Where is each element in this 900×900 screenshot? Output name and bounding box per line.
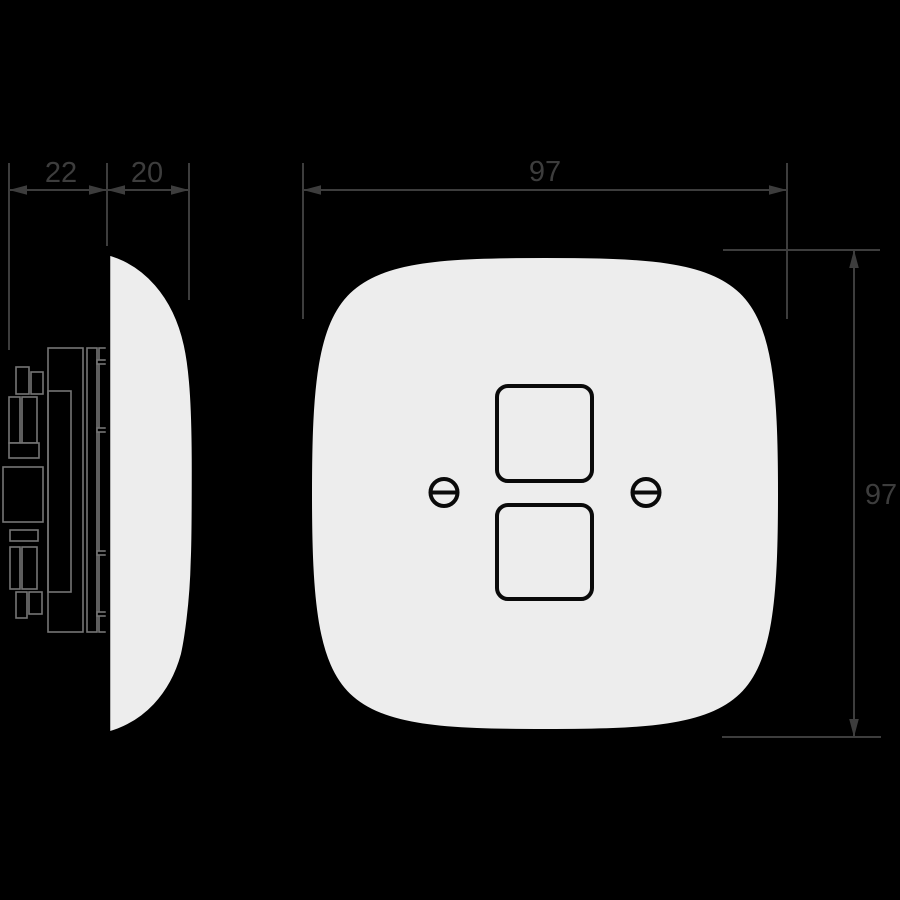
arrowhead-down-icon [849, 719, 859, 737]
technical-drawing: 22 20 97 97 [0, 0, 900, 900]
mounting-tab [97, 612, 107, 616]
front-view [308, 254, 783, 734]
dim-label-plate-depth: 20 [131, 157, 163, 189]
arrowhead-left-icon [107, 185, 125, 195]
mechanism-terminal [22, 547, 37, 589]
mechanism-terminal [22, 397, 37, 443]
dim-label-mechanism-depth: 22 [45, 157, 77, 189]
mechanism-terminal [16, 592, 27, 618]
mechanism-body [3, 348, 107, 632]
drawing-area: 22 20 97 97 [0, 0, 900, 900]
arrowhead-right-icon [89, 185, 107, 195]
side-view [3, 253, 194, 734]
mechanism-terminal [9, 443, 39, 458]
mechanism-terminal [10, 530, 38, 541]
dim-label-plate-height: 97 [865, 479, 897, 511]
arrowhead-left-icon [9, 185, 27, 195]
mechanism-terminal [31, 372, 43, 394]
side-plate-profile [108, 253, 194, 734]
mechanism-terminal [10, 547, 20, 589]
mechanism-mount-strip-outer [87, 348, 97, 632]
mounting-tab [97, 551, 107, 555]
arrowhead-up-icon [849, 250, 859, 268]
arrowhead-right-icon [171, 185, 189, 195]
front-plate [308, 254, 783, 734]
mechanism-middle-block [3, 467, 43, 522]
mounting-tab [97, 428, 107, 432]
mounting-tab [97, 360, 107, 364]
mechanism-terminal [29, 592, 42, 614]
dim-mechanism-depth: 22 [9, 157, 107, 350]
dim-label-plate-width: 97 [529, 156, 561, 188]
arrowhead-right-icon [769, 185, 787, 195]
mechanism-terminal [16, 367, 29, 394]
arrowhead-left-icon [303, 185, 321, 195]
mechanism-terminal [9, 397, 20, 443]
